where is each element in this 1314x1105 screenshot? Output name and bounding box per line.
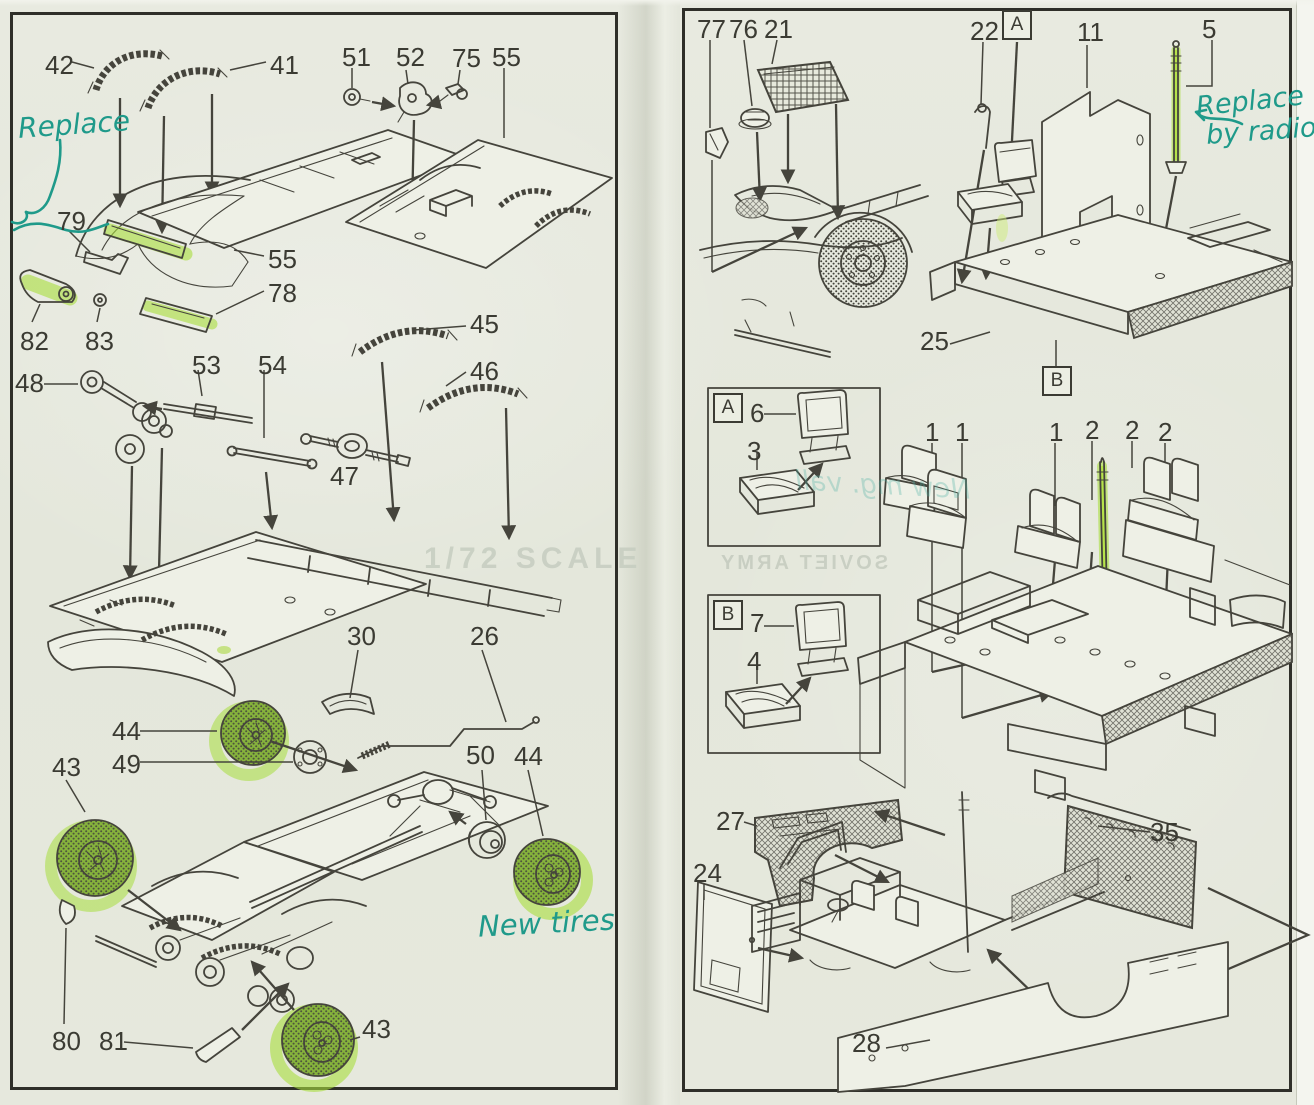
part-label-26: 26	[470, 621, 499, 652]
part-label-1-b: 1	[955, 417, 969, 448]
part-label-45: 45	[470, 309, 499, 340]
inset-a-letter: A	[722, 397, 735, 419]
part-label-48: 48	[15, 368, 44, 399]
part-label-55-side: 55	[268, 244, 297, 275]
part-label-7: 7	[750, 608, 764, 639]
part-label-24: 24	[693, 858, 722, 889]
part-label-4: 4	[747, 646, 761, 677]
part-label-80: 80	[52, 1026, 81, 1057]
part-label-47: 47	[330, 461, 359, 492]
part-label-2-a: 2	[1085, 415, 1099, 446]
assembly-marker-b-letter: B	[1051, 370, 1064, 392]
part-label-43-bottom: 43	[362, 1014, 391, 1045]
part-label-35: 35	[1150, 817, 1179, 848]
part-label-44-top: 44	[112, 716, 141, 747]
part-label-41: 41	[270, 50, 299, 81]
assembly-marker-a-letter: A	[1011, 14, 1024, 36]
part-label-6: 6	[750, 398, 764, 429]
part-label-46: 46	[470, 356, 499, 387]
truck-front-assembly-art	[700, 40, 928, 357]
assembly-marker-a-top: A	[1002, 10, 1032, 40]
part-label-42: 42	[45, 50, 74, 81]
part-label-52: 52	[396, 42, 425, 73]
bleed-through-soviet-army-text: SOVIET ARMY	[718, 552, 888, 575]
part-label-79: 79	[57, 206, 86, 237]
diagram-artwork	[0, 0, 1314, 1105]
part-label-1-c: 1	[1049, 417, 1063, 448]
part-label-30: 30	[347, 621, 376, 652]
part-label-55-top: 55	[492, 42, 521, 73]
part-label-2-c: 2	[1158, 417, 1172, 448]
assembly-marker-b-mid: B	[1042, 366, 1072, 396]
part-label-3: 3	[747, 436, 761, 467]
part-label-76: 76	[729, 14, 758, 45]
bleed-through-scale-text: 1/72 SCALE	[424, 542, 642, 576]
part-label-77: 77	[697, 14, 726, 45]
inset-a-marker: A	[713, 393, 743, 423]
part-label-51: 51	[342, 42, 371, 73]
scanned-instruction-sheet: 42 41 51 52 75 55 79 55 78 82 83 48 53 5…	[0, 0, 1314, 1105]
part-label-83: 83	[85, 326, 114, 357]
part-label-2-b: 2	[1125, 415, 1139, 446]
part-label-1-a: 1	[925, 417, 939, 448]
part-label-53: 53	[192, 350, 221, 381]
part-label-49: 49	[112, 749, 141, 780]
part-label-81: 81	[99, 1026, 128, 1057]
part-label-11: 11	[1077, 17, 1104, 48]
part-label-5: 5	[1202, 14, 1216, 45]
part-label-78: 78	[268, 278, 297, 309]
part-label-44-right: 44	[514, 741, 543, 772]
part-label-54: 54	[258, 350, 287, 381]
part-label-28: 28	[852, 1028, 881, 1059]
inset-b-letter: B	[722, 604, 735, 626]
part-label-22: 22	[970, 16, 999, 47]
part-label-25: 25	[920, 326, 949, 357]
part-label-82: 82	[20, 326, 49, 357]
part-label-50: 50	[466, 740, 495, 771]
part-label-75: 75	[452, 43, 481, 74]
part-label-21: 21	[764, 14, 793, 45]
part-label-27: 27	[716, 806, 745, 837]
body-panels-assembly-art	[694, 792, 1308, 1092]
handwritten-new-tires-note: New tires	[477, 902, 615, 943]
part-label-43-left: 43	[52, 752, 81, 783]
inset-b-marker: B	[713, 600, 743, 630]
